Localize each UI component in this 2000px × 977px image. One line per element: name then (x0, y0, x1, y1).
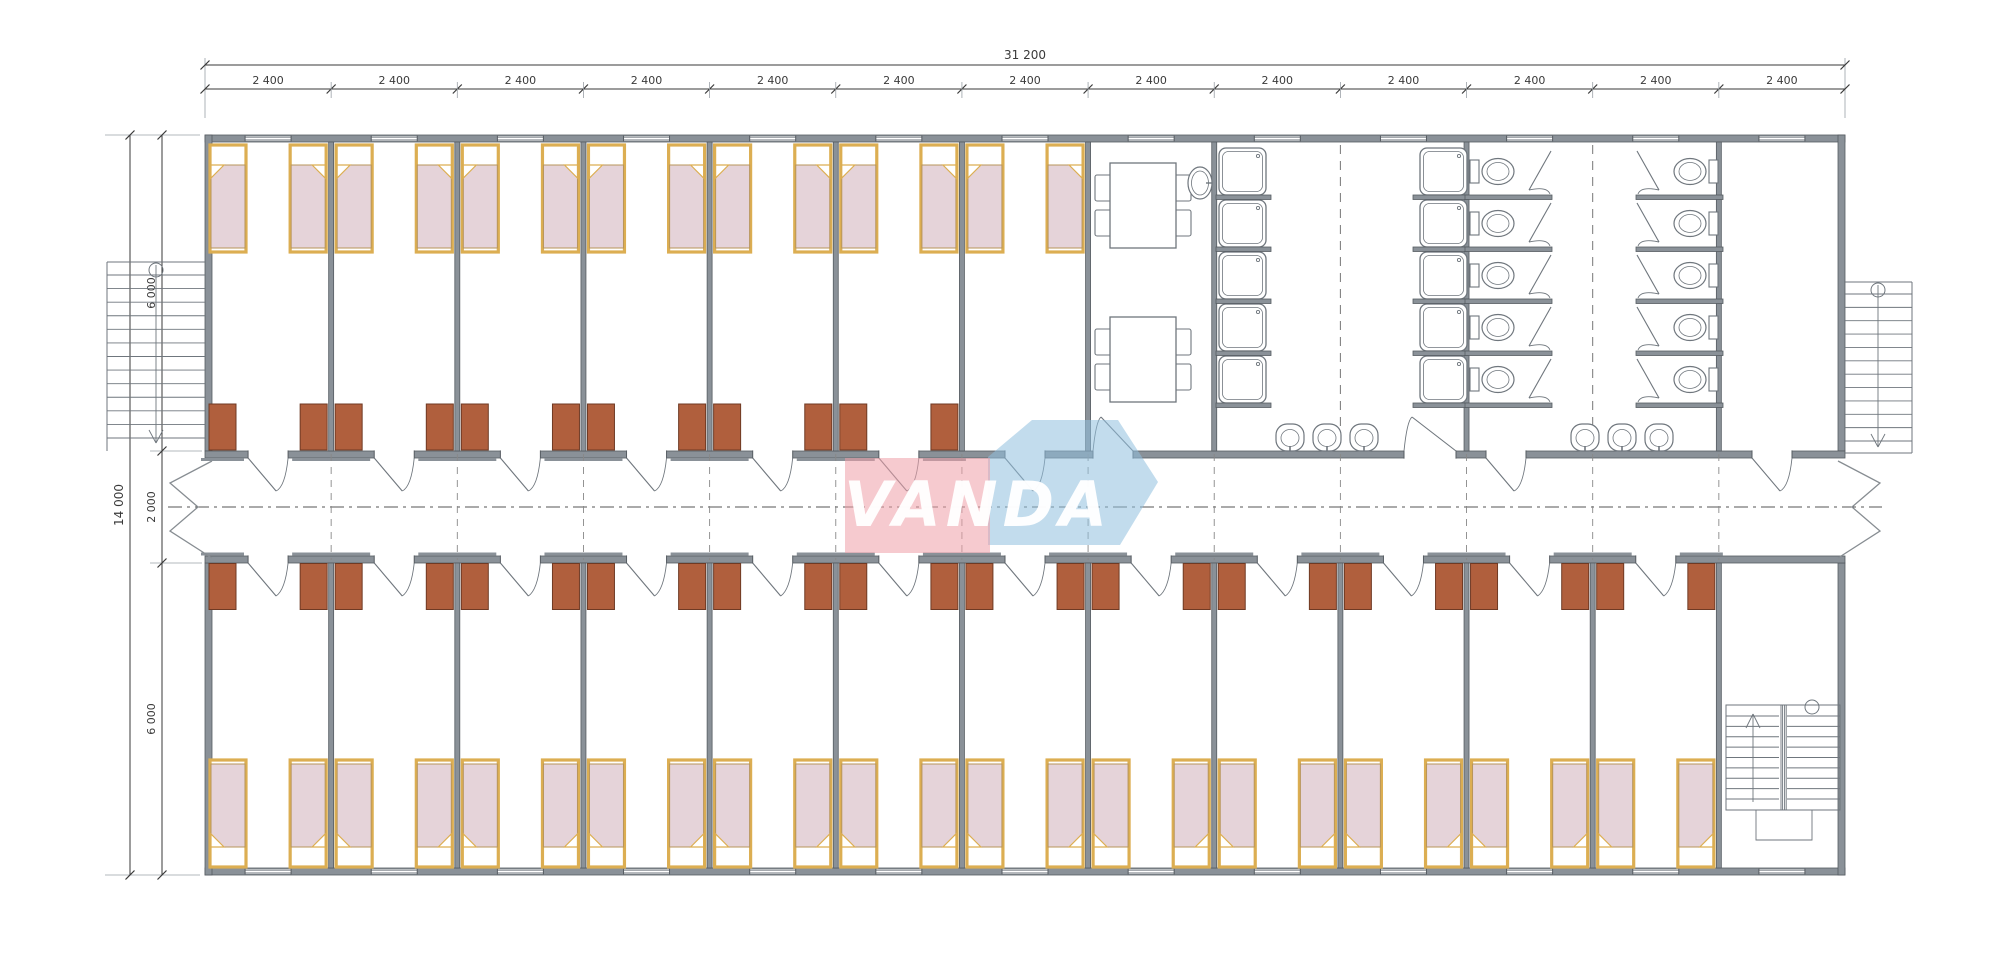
stair-rail (1785, 705, 1787, 810)
top-segment-dimension-label: 2 400 (378, 74, 410, 87)
bed-blanket (1427, 764, 1461, 847)
door-opening (1404, 450, 1456, 458)
door-threshold (327, 553, 370, 556)
door-opening (374, 555, 414, 563)
shower-divider-wall (1413, 247, 1468, 252)
wardrobe (426, 564, 453, 610)
partition-wall-bottom (833, 563, 838, 868)
door-swing-arc (276, 563, 288, 596)
door-leaf (1412, 417, 1456, 451)
bed-blanket (1473, 764, 1507, 847)
wardrobe (931, 404, 958, 450)
door-leaf (1752, 458, 1780, 491)
toilet-tank (1709, 212, 1718, 235)
toilet-door-arc (1529, 241, 1550, 246)
door-leaf (627, 563, 655, 596)
bed-blanket (922, 764, 956, 847)
door-opening (1510, 555, 1550, 563)
stair-rail (1781, 705, 1783, 810)
toilet-door-arc (1638, 345, 1659, 350)
wardrobe (426, 404, 453, 450)
wardrobe (1092, 564, 1119, 610)
door-threshold (579, 553, 622, 556)
wardrobe (1471, 564, 1498, 610)
door-opening (1486, 450, 1526, 458)
toilet-door-arc (1529, 293, 1550, 298)
toilet-door-arc (1638, 293, 1659, 298)
toilet-stall-divider (1465, 403, 1552, 408)
door-swing-arc (1538, 563, 1550, 596)
bed-blanket (1174, 764, 1208, 847)
door-swing-arc (655, 563, 667, 596)
break-mark-left (170, 461, 212, 558)
toilet-door-arc (1529, 189, 1550, 194)
wardrobe (335, 404, 362, 450)
bed-blanket (543, 165, 577, 248)
bed-blanket (1679, 764, 1713, 847)
door-opening (1636, 555, 1676, 563)
door-swing-arc (1780, 458, 1792, 491)
bed-blanket (1346, 764, 1380, 847)
toilet-door-leaf (1637, 151, 1659, 190)
wardrobe (300, 564, 327, 610)
toilet-door-arc (1638, 241, 1659, 246)
door-threshold (1084, 553, 1127, 556)
bed-blanket (670, 165, 704, 248)
door-swing-arc (1404, 417, 1412, 451)
door-threshold (201, 458, 244, 461)
door-swing-arc (781, 563, 793, 596)
door-opening (248, 555, 288, 563)
bed-blanket (1048, 764, 1082, 847)
wardrobe (1597, 564, 1624, 610)
stair-arrow-icon (1871, 434, 1878, 447)
door-opening (753, 450, 793, 458)
shower-divider-wall (1216, 247, 1271, 252)
door-swing-arc (1285, 563, 1297, 596)
toilet-tank (1709, 368, 1718, 391)
top-segment-dimension-label: 2 400 (757, 74, 789, 87)
partition-wall-bottom (707, 563, 712, 868)
door-leaf (753, 563, 781, 596)
door-swing-arc (402, 458, 414, 491)
floor-plan-page: 31 2002 4002 4002 4002 4002 4002 4002 40… (0, 0, 2000, 977)
wardrobe (300, 404, 327, 450)
toilet-tank (1709, 316, 1718, 339)
wardrobe (1183, 564, 1210, 610)
toilet-door-arc (1529, 397, 1550, 402)
door-leaf (879, 563, 907, 596)
door-swing-arc (781, 458, 793, 491)
partition-wall-bottom (1338, 563, 1343, 868)
top-segment-dimension-label: 2 400 (883, 74, 915, 87)
door-swing-arc (655, 458, 667, 491)
toilet-door-arc (1638, 397, 1659, 402)
toilet-door-leaf (1529, 255, 1551, 294)
door-swing-arc (907, 563, 919, 596)
bed-blanket (1300, 764, 1334, 847)
partition-wall-top (707, 142, 712, 451)
toilet-door-leaf (1529, 151, 1551, 190)
bed-blanket (463, 764, 497, 847)
wardrobe (1562, 564, 1589, 610)
top-segment-dimension-label: 2 400 (1640, 74, 1672, 87)
toilet-door-leaf (1637, 307, 1659, 346)
shower-divider-wall (1216, 195, 1271, 200)
exterior-wall-right (1838, 563, 1845, 875)
top-segment-dimension-label: 2 400 (631, 74, 663, 87)
wardrobe (552, 564, 579, 610)
toilet-stall-divider (1636, 299, 1723, 304)
door-swing-arc (1159, 563, 1171, 596)
door-threshold (453, 553, 496, 556)
toilet-door-leaf (1637, 203, 1659, 242)
shower-divider-wall (1413, 195, 1468, 200)
door-leaf (1383, 563, 1411, 596)
bed-blanket (716, 764, 750, 847)
partition-wall-top (959, 142, 964, 451)
door-opening (500, 555, 540, 563)
door-swing-arc (528, 458, 540, 491)
door-swing-arc (528, 563, 540, 596)
partition-wall-bottom (1212, 563, 1217, 868)
bed-blanket (842, 165, 876, 248)
door-threshold (706, 458, 749, 461)
bed-blanket (211, 165, 245, 248)
door-opening (500, 450, 540, 458)
door-opening (879, 555, 919, 563)
wardrobe (1436, 564, 1463, 610)
partition-wall-top (455, 142, 460, 451)
bed-blanket (922, 165, 956, 248)
shower-divider-wall (1216, 351, 1271, 356)
toilet-door-leaf (1529, 203, 1551, 242)
wardrobe (805, 404, 832, 450)
bed-blanket (337, 165, 371, 248)
door-opening (1131, 555, 1171, 563)
bed-blanket (463, 165, 497, 248)
stair-arrow-icon (1878, 434, 1885, 447)
top-segment-dimension-label: 2 400 (1514, 74, 1546, 87)
door-threshold (1589, 553, 1632, 556)
door-leaf (753, 458, 781, 491)
bed-blanket (1048, 165, 1082, 248)
partition-wall-top (833, 142, 838, 451)
wardrobe (209, 404, 236, 450)
door-swing-arc (276, 458, 288, 491)
top-segment-dimension-label: 2 400 (1262, 74, 1294, 87)
door-opening (879, 450, 919, 458)
wardrobe (1309, 564, 1336, 610)
door-threshold (1336, 553, 1379, 556)
toilet-tank (1470, 264, 1479, 287)
door-leaf (1510, 563, 1538, 596)
stair-arrow-icon (149, 430, 156, 443)
stair-start-circle (1805, 700, 1819, 714)
partition-wall-bottom (455, 563, 460, 868)
partition-wall-bottom (1716, 563, 1721, 868)
bed-blanket (842, 764, 876, 847)
bed-blanket (968, 764, 1002, 847)
wardrobe (552, 404, 579, 450)
top-overall-dimension-label: 31 200 (1004, 48, 1046, 62)
bed-blanket (670, 764, 704, 847)
toilet-stall-divider (1465, 351, 1552, 356)
toilet-door-leaf (1637, 359, 1659, 398)
toilet-stall-divider (1636, 247, 1723, 252)
door-threshold (706, 553, 749, 556)
toilet-tank (1470, 212, 1479, 235)
watermark-text: VANDA (844, 468, 1112, 541)
toilet-tank (1709, 160, 1718, 183)
floor-plan-drawing: 31 2002 4002 4002 4002 4002 4002 4002 40… (0, 0, 2000, 977)
toilet-stall-divider (1465, 247, 1552, 252)
toilet-door-arc (1529, 345, 1550, 350)
door-leaf (500, 458, 528, 491)
wardrobe (1344, 564, 1371, 610)
door-opening (1257, 555, 1297, 563)
door-leaf (1257, 563, 1285, 596)
bed-blanket (1553, 764, 1587, 847)
bed-blanket (1220, 764, 1254, 847)
toilet-stall-divider (1465, 299, 1552, 304)
door-swing-arc (1514, 458, 1526, 491)
door-opening (1005, 555, 1045, 563)
left-segment-dimension-label: 6 000 (145, 703, 158, 735)
toilet-stall-divider (1636, 195, 1723, 200)
toilet-door-leaf (1529, 307, 1551, 346)
door-leaf (374, 563, 402, 596)
wardrobe (1218, 564, 1245, 610)
door-threshold (327, 458, 370, 461)
bed-blanket (211, 764, 245, 847)
toilet-stall-divider (1636, 351, 1723, 356)
wardrobe (1057, 564, 1084, 610)
shower-divider-wall (1216, 299, 1271, 304)
shower-divider-wall (1413, 351, 1468, 356)
door-opening (1752, 450, 1792, 458)
bed-blanket (417, 764, 451, 847)
door-threshold (1210, 553, 1253, 556)
bed-blanket (543, 764, 577, 847)
toilet-tank (1709, 264, 1718, 287)
door-opening (627, 555, 667, 563)
wardrobe (966, 564, 993, 610)
door-swing-arc (402, 563, 414, 596)
wardrobe (461, 404, 488, 450)
door-leaf (1636, 563, 1664, 596)
partition-wall-bottom (581, 563, 586, 868)
partition-wall-bottom (1086, 563, 1091, 868)
dining-table (1110, 317, 1176, 402)
door-swing-arc (1033, 563, 1045, 596)
toilet-door-leaf (1529, 359, 1551, 398)
stair-landing (1756, 810, 1812, 840)
bed-blanket (291, 165, 325, 248)
door-leaf (1131, 563, 1159, 596)
door-swing-arc (1411, 563, 1423, 596)
door-leaf (500, 563, 528, 596)
toilet-tank (1470, 160, 1479, 183)
door-threshold (1680, 553, 1723, 556)
partition-wall-top (581, 142, 586, 451)
door-threshold (1463, 553, 1506, 556)
bed-blanket (796, 165, 830, 248)
exterior-wall-right (1838, 135, 1845, 451)
partition-wall-top (1086, 142, 1091, 451)
door-opening (1383, 555, 1423, 563)
wardrobe (679, 404, 706, 450)
partition-wall-bottom (1590, 563, 1595, 868)
wardrobe (335, 564, 362, 610)
door-leaf (248, 563, 276, 596)
bed-blanket (796, 764, 830, 847)
door-threshold (453, 458, 496, 461)
bed-blanket (291, 764, 325, 847)
left-overall-dimension-label: 14 000 (112, 484, 126, 526)
top-segment-dimension-label: 2 400 (1135, 74, 1167, 87)
door-leaf (1486, 458, 1514, 491)
wardrobe (840, 404, 867, 450)
shower-divider-wall (1413, 299, 1468, 304)
wardrobe (931, 564, 958, 610)
shower-divider-wall (1413, 403, 1468, 408)
door-threshold (579, 458, 622, 461)
toilet-tank (1470, 316, 1479, 339)
door-opening (248, 450, 288, 458)
wardrobe (209, 564, 236, 610)
left-segment-dimension-label: 2 000 (145, 491, 158, 523)
bed-blanket (417, 165, 451, 248)
wardrobe (805, 564, 832, 610)
partition-wall-bottom (329, 563, 334, 868)
wardrobe (1688, 564, 1715, 610)
wardrobe (840, 564, 867, 610)
door-swing-arc (1664, 563, 1676, 596)
bed-blanket (337, 764, 371, 847)
door-leaf (1005, 563, 1033, 596)
door-leaf (374, 458, 402, 491)
top-segment-dimension-label: 2 400 (1766, 74, 1798, 87)
wardrobe (714, 404, 741, 450)
dining-table (1110, 163, 1176, 248)
bed-blanket (1094, 764, 1128, 847)
bed-blanket (968, 165, 1002, 248)
wardrobe (714, 564, 741, 610)
toilet-stall-divider (1465, 195, 1552, 200)
top-segment-dimension-label: 2 400 (1388, 74, 1420, 87)
toilet-stall-divider (1636, 403, 1723, 408)
break-mark-right (1838, 461, 1880, 558)
wardrobe (679, 564, 706, 610)
toilet-door-leaf (1637, 255, 1659, 294)
toilet-door-arc (1638, 189, 1659, 194)
shower-divider-wall (1216, 403, 1271, 408)
bed-blanket (589, 165, 623, 248)
top-segment-dimension-label: 2 400 (1009, 74, 1041, 87)
partition-wall-top (329, 142, 334, 451)
top-segment-dimension-label: 2 400 (505, 74, 537, 87)
partition-wall-bottom (959, 563, 964, 868)
wardrobe (587, 404, 614, 450)
wardrobe (461, 564, 488, 610)
partition-wall-bottom (1464, 563, 1469, 868)
wardrobe (587, 564, 614, 610)
door-opening (374, 450, 414, 458)
bed-blanket (1599, 764, 1633, 847)
bed-blanket (589, 764, 623, 847)
door-opening (753, 555, 793, 563)
door-opening (627, 450, 667, 458)
toilet-tank (1470, 368, 1479, 391)
top-segment-dimension-label: 2 400 (252, 74, 284, 87)
door-leaf (248, 458, 276, 491)
door-leaf (627, 458, 655, 491)
bed-blanket (716, 165, 750, 248)
